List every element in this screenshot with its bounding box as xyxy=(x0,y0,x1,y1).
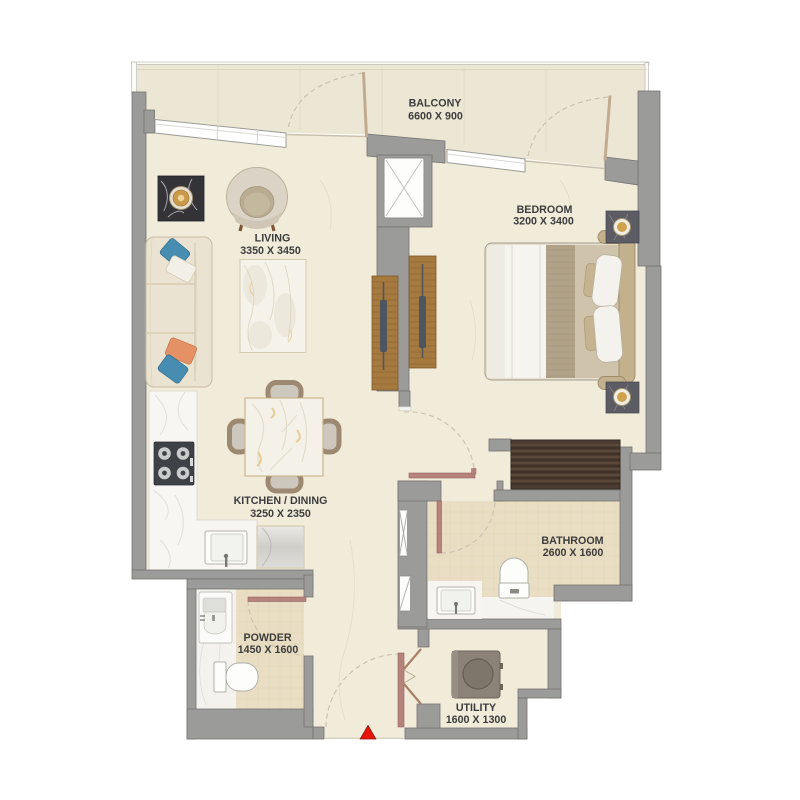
svg-text:KITCHEN / DINING: KITCHEN / DINING xyxy=(234,495,328,507)
svg-text:6600 X 900: 6600 X 900 xyxy=(408,111,463,123)
svg-text:BATHROOM: BATHROOM xyxy=(541,535,603,547)
svg-text:LIVING: LIVING xyxy=(255,233,291,245)
svg-text:2600 X 1600: 2600 X 1600 xyxy=(543,547,604,559)
svg-text:3200 X 3400: 3200 X 3400 xyxy=(513,216,574,228)
svg-text:3250 X 2350: 3250 X 2350 xyxy=(250,508,311,520)
svg-text:UTILITY: UTILITY xyxy=(456,702,496,714)
svg-text:BALCONY: BALCONY xyxy=(409,98,462,110)
svg-text:BEDROOM: BEDROOM xyxy=(517,204,573,216)
svg-text:POWDER: POWDER xyxy=(243,632,291,644)
svg-text:3350 X 3450: 3350 X 3450 xyxy=(240,245,301,257)
svg-text:1450 X 1600: 1450 X 1600 xyxy=(238,644,299,656)
svg-text:1600 X 1300: 1600 X 1300 xyxy=(446,714,507,726)
